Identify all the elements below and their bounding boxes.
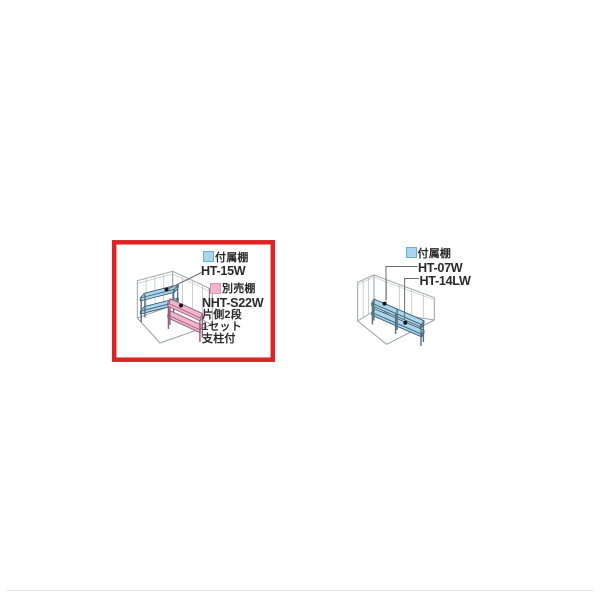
optional-spec-line-3: 支柱付 (202, 334, 236, 345)
ht14lw-marker-dot (403, 321, 407, 325)
included-shelf-swatch-right (406, 247, 417, 258)
image-bottom-border (6, 590, 594, 591)
included-shelf-swatch-left (203, 251, 214, 262)
product-illustration: 付属棚 HT-15W 別売棚 NHT-S22W 片側2段 1セット 支柱付 付属… (0, 0, 600, 600)
optional-spec-line-1: 片側2段 (202, 310, 242, 321)
model-ht-14lw: HT-14LW (420, 275, 471, 288)
optional-spec-line-2: 1セット (202, 322, 242, 333)
model-nht-s22w: NHT-S22W (202, 297, 263, 310)
included-shelf-legend-left: 付属棚 (215, 253, 249, 264)
model-ht-15w: HT-15W (201, 265, 245, 278)
optional-shelf-legend: 別売棚 (222, 284, 256, 295)
optional-shelf-swatch (210, 283, 221, 294)
included-shelf-legend-right: 付属棚 (418, 249, 452, 260)
pink-shelf-marker-dot (179, 304, 183, 308)
model-ht-07w: HT-07W (418, 262, 462, 275)
shed-line-art (0, 0, 600, 600)
ht07w-marker-dot (383, 302, 387, 306)
blue-shelf-marker-dot (165, 288, 169, 292)
